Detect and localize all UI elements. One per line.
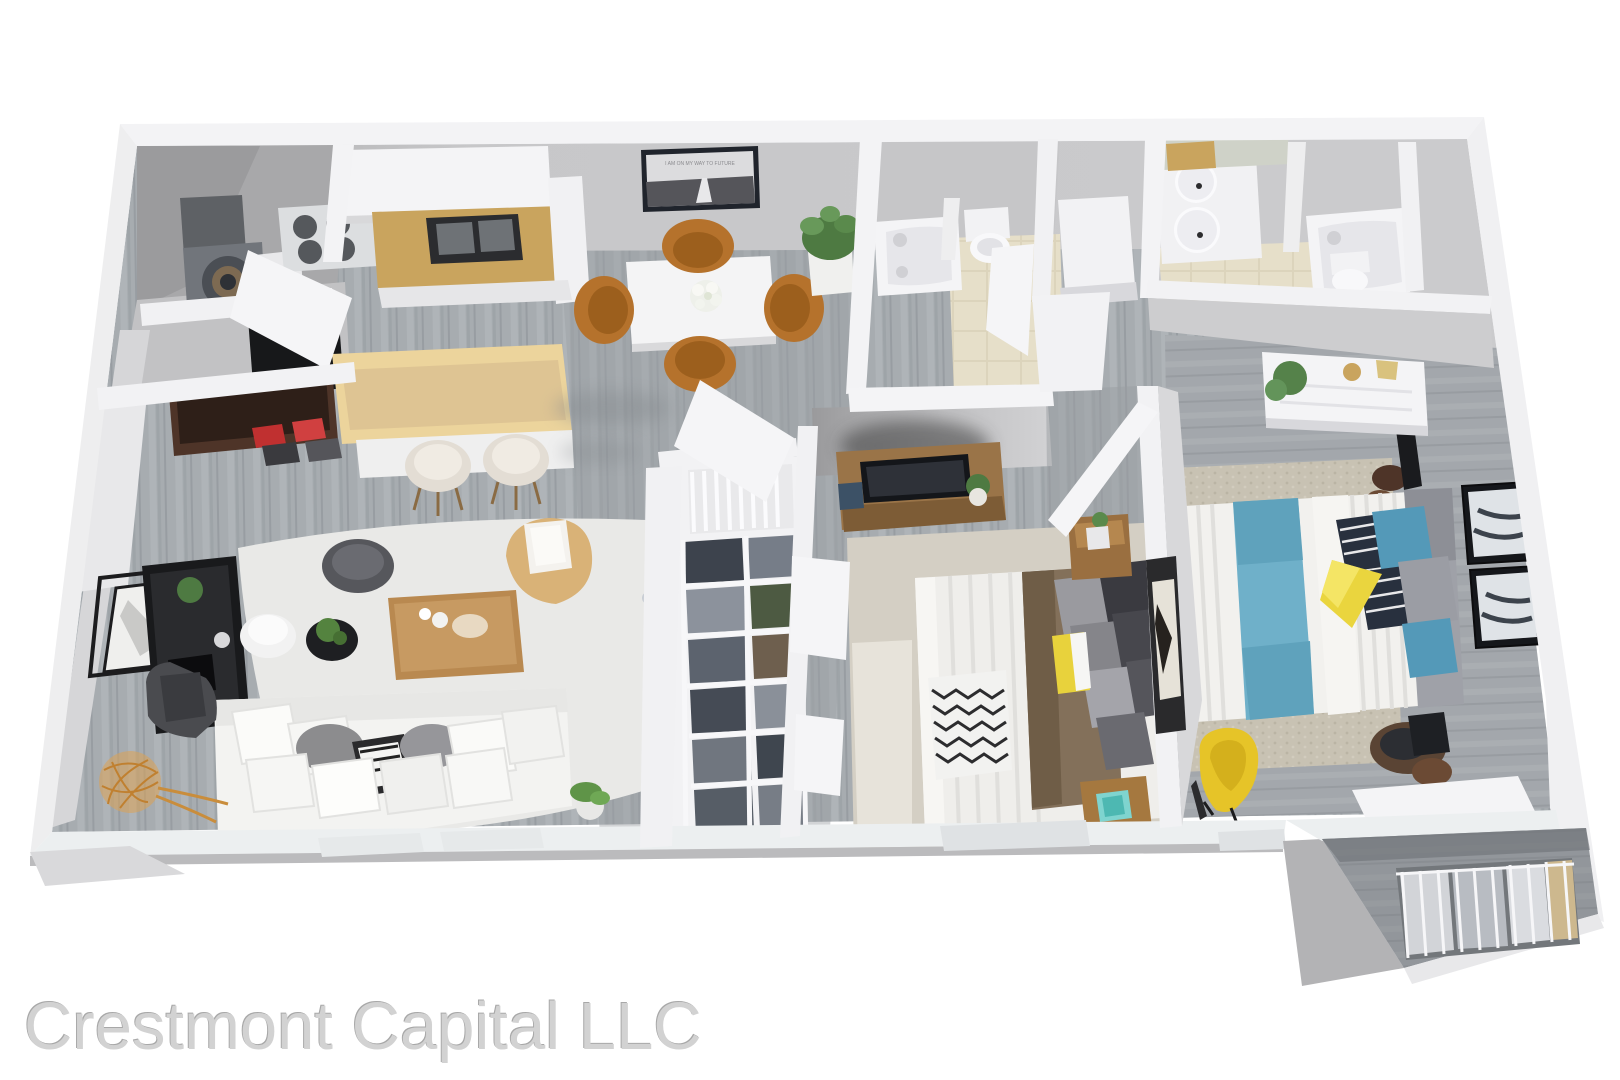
svg-text:I AM ON MY WAY TO FUTURE: I AM ON MY WAY TO FUTURE [665,161,735,167]
